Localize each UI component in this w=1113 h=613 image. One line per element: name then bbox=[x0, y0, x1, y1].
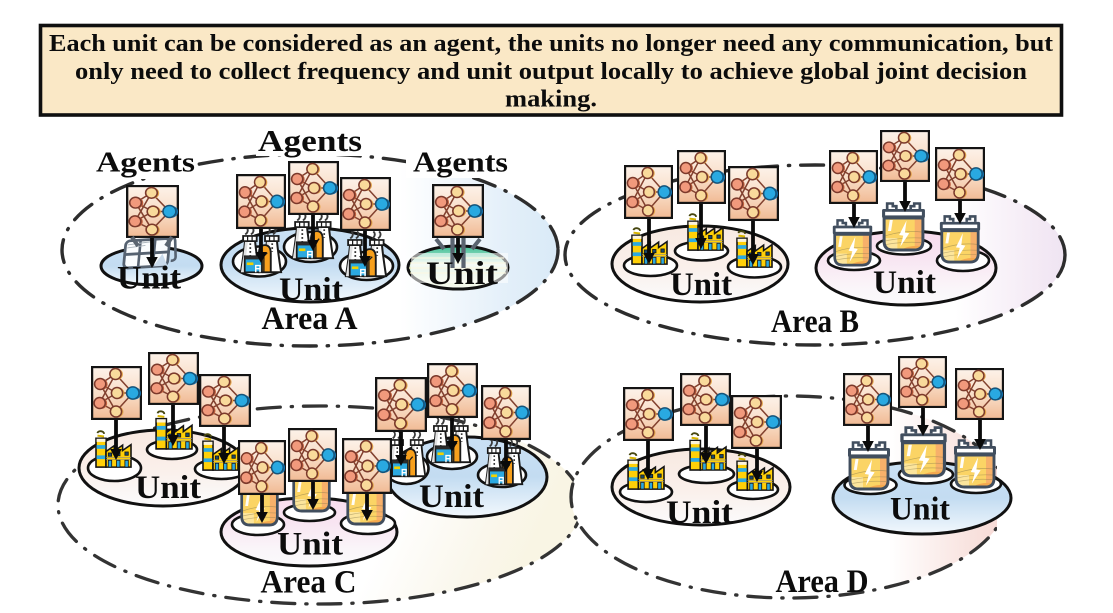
svg-text:Agents: Agents bbox=[96, 148, 195, 179]
svg-text:Area B: Area B bbox=[771, 304, 859, 340]
svg-text:Area C: Area C bbox=[261, 565, 357, 601]
svg-text:Unit: Unit bbox=[419, 479, 484, 515]
svg-text:only need to collect frequency: only need to collect frequency and unit … bbox=[75, 58, 1027, 85]
svg-text:Unit: Unit bbox=[890, 492, 950, 528]
svg-text:Unit: Unit bbox=[666, 495, 733, 531]
svg-text:Unit: Unit bbox=[117, 261, 181, 297]
svg-text:Unit: Unit bbox=[277, 527, 343, 563]
svg-text:Unit: Unit bbox=[873, 265, 936, 301]
svg-text:Agents: Agents bbox=[413, 148, 508, 179]
svg-text:Unit: Unit bbox=[426, 256, 498, 292]
svg-text:Each unit can be considered as: Each unit can be considered as an agent,… bbox=[49, 30, 1054, 57]
svg-text:Unit: Unit bbox=[670, 267, 732, 303]
svg-text:Unit: Unit bbox=[135, 470, 201, 506]
svg-text:Area D: Area D bbox=[776, 564, 869, 600]
svg-text:making.: making. bbox=[505, 86, 597, 113]
svg-text:Area A: Area A bbox=[262, 301, 358, 337]
svg-text:Agents: Agents bbox=[258, 123, 362, 158]
